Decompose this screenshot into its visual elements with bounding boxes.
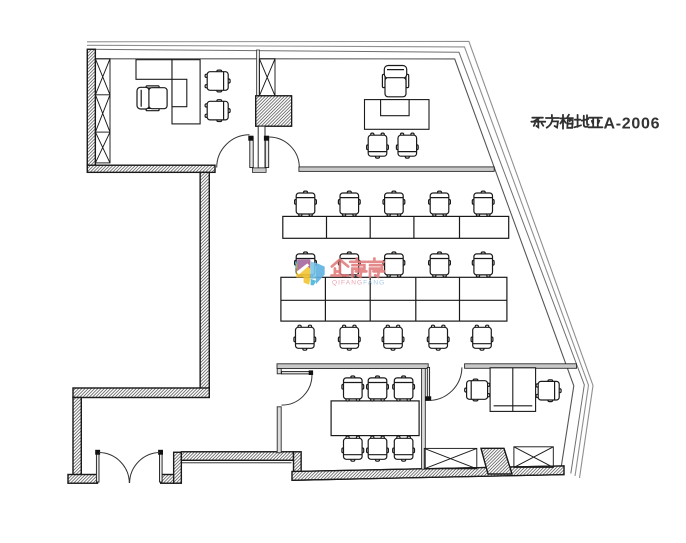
svg-text:A-2006: A-2006 bbox=[604, 116, 661, 133]
svg-text:QIFANGFANG: QIFANGFANG bbox=[332, 280, 385, 287]
